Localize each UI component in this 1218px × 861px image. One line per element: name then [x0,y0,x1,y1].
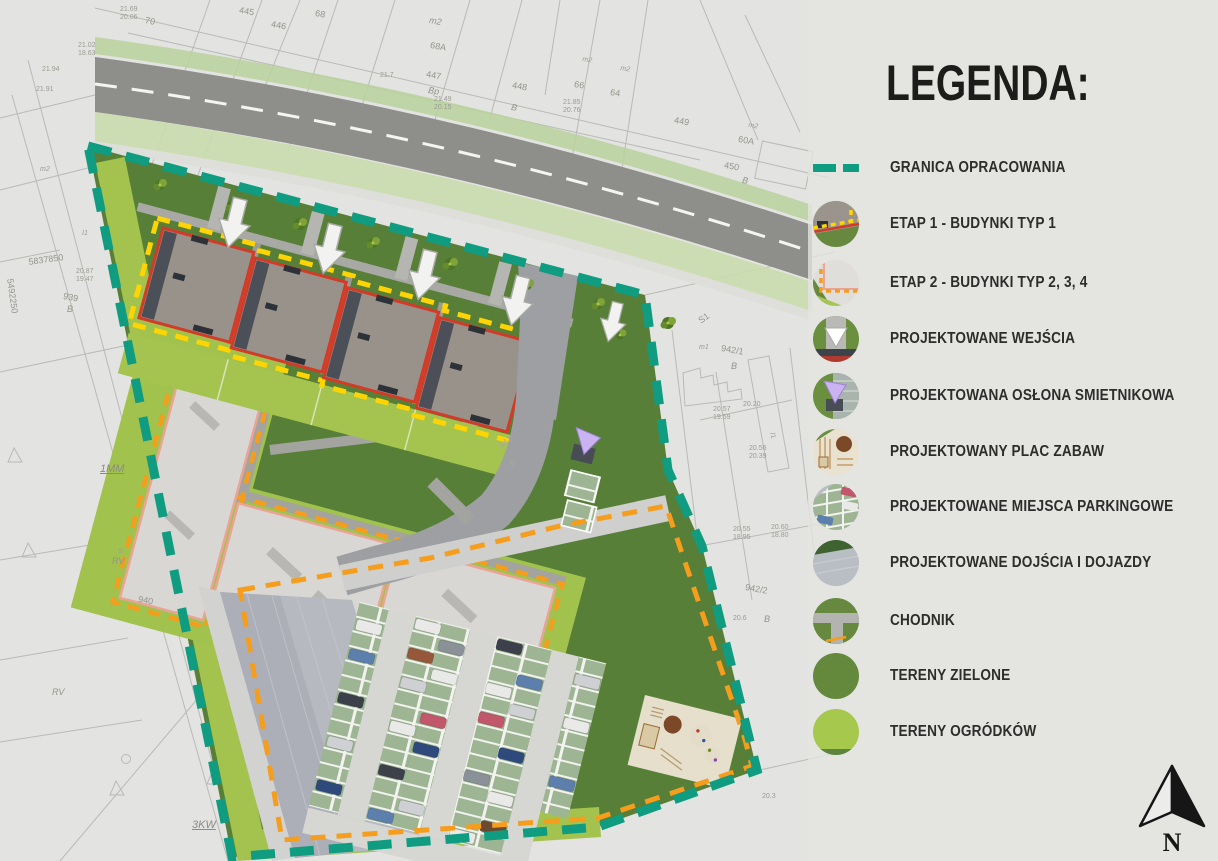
map-label: RV [52,688,64,697]
legend-item-label: TERENY ZIELONE [890,653,1010,699]
legend-item-label: ETAP 1 - BUDYNKI TYP 1 [890,201,1056,247]
map-label: 66 [573,80,584,91]
pavement-icon [813,540,859,586]
stage1-building-icon [813,201,859,247]
map-label: 18.80 [771,532,789,539]
legend-item-chodnik: CHODNIK [808,598,1218,644]
map-label: 19.59 [713,414,731,421]
north-arrow-icon [1128,764,1212,828]
legend-item-wejscia: PROJEKTOWANE WEJŚCIA [808,316,1218,362]
legend-item-label: PROJEKTOWANE DOJŚCIA I DOJAZDY [890,540,1151,586]
map-label: 20.39 [749,453,767,460]
map-label: 20.87 [76,268,94,275]
map-label: 1MM [100,464,124,475]
legend-item-label: PROJEKTOWANE WEJŚCIA [890,316,1075,362]
sidewalk-icon [813,598,859,644]
playground-icon [813,429,859,475]
map-label: m2 [428,16,442,27]
map-label: 21.85 [563,99,581,106]
legend-item-dojscia: PROJEKTOWANE DOJŚCIA I DOJAZDY [808,540,1218,586]
north-arrow: N [1128,764,1212,860]
map-label: B [67,305,73,314]
legend-item-label: CHODNIK [890,598,955,644]
legend-item-zielone: TERENY ZIELONE [808,653,1218,699]
legend-item-oslona: PROJEKTOWANA OSŁONA SMIETNIKOWA [808,373,1218,419]
map-label: I1 [82,230,88,237]
map-label: RV [112,557,124,566]
legend-item-etap1: ETAP 1 - BUDYNKI TYP 1 [808,201,1218,247]
map-label: 20.06 [120,14,138,21]
map-label: S [118,548,123,555]
map-label: 21.91 [36,86,54,93]
map-label: 20.15 [434,104,452,111]
map-label: 68 [314,9,325,20]
legend-item-granica: GRANICA OPRACOWANIA [808,145,1218,191]
map-label: 20.3 [762,793,776,800]
teal-dash-icon [813,145,859,191]
map-label: B [731,362,737,371]
legend-panel: LEGENDA: GRANICA OPRACOWANIA ETAP 1 - BU… [808,0,1218,861]
map-label: 20.56 [749,445,767,452]
green-area-icon [813,653,859,699]
map-label: m2 [748,122,759,131]
map-label: 20.20 [743,401,761,408]
parking-icon [813,484,859,530]
map-label: 21.49 [434,96,452,103]
entrance-arrow-legend-icon [813,316,859,362]
legend-item-label: PROJEKTOWANE MIEJSCA PARKINGOWE [890,484,1173,530]
trash-shelter-icon [813,373,859,419]
map-label: 70 [144,16,156,27]
map-label: m2 [620,65,631,74]
map-label: 3KW [192,820,216,831]
legend-item-ogrodki: TERENY OGRÓDKÓW [808,709,1218,755]
site-plan-canvas: 70 445 446 68 m2 68A 447 Bp 448 B 66 64 … [0,0,1218,861]
map-label: 20.76 [563,107,581,114]
legend-item-etap2: ETAP 2 - BUDYNKI TYP 2, 3, 4 [808,260,1218,306]
north-label: N [1154,828,1190,858]
map-label: B [764,615,770,624]
legend-title: LEGENDA: [886,54,1090,112]
map-label: 21.94 [42,66,60,73]
map-label: 19.47 [76,276,94,283]
map-label: 21.02 [78,42,96,49]
map-label: 18.63 [78,50,96,57]
map-label: m2 [40,166,50,173]
legend-item-label: GRANICA OPRACOWANIA [890,145,1066,191]
map-label: 20.6 [733,615,747,622]
legend-item-label: PROJEKTOWANA OSŁONA SMIETNIKOWA [890,373,1175,419]
legend-item-label: TERENY OGRÓDKÓW [890,709,1036,755]
map-label: 20.55 [733,526,751,533]
map-label: 21.69 [120,6,138,13]
map-label: 20.57 [713,406,731,413]
map-label: 20.60 [771,524,789,531]
stage2-building-icon [813,260,859,306]
map-label: 18.95 [733,534,751,541]
legend-item-label: ETAP 2 - BUDYNKI TYP 2, 3, 4 [890,260,1087,306]
map-label: 21.7 [380,72,394,79]
map-label: m2 [582,56,593,65]
legend-item-parking: PROJEKTOWANE MIEJSCA PARKINGOWE [808,484,1218,530]
legend-item-plac-zabaw: PROJEKTOWANY PLAC ZABAW [808,429,1218,475]
legend-item-label: PROJEKTOWANY PLAC ZABAW [890,429,1104,475]
garden-area-icon [813,709,859,755]
map-label: m1 [699,344,709,351]
map-label: 64 [609,88,620,99]
